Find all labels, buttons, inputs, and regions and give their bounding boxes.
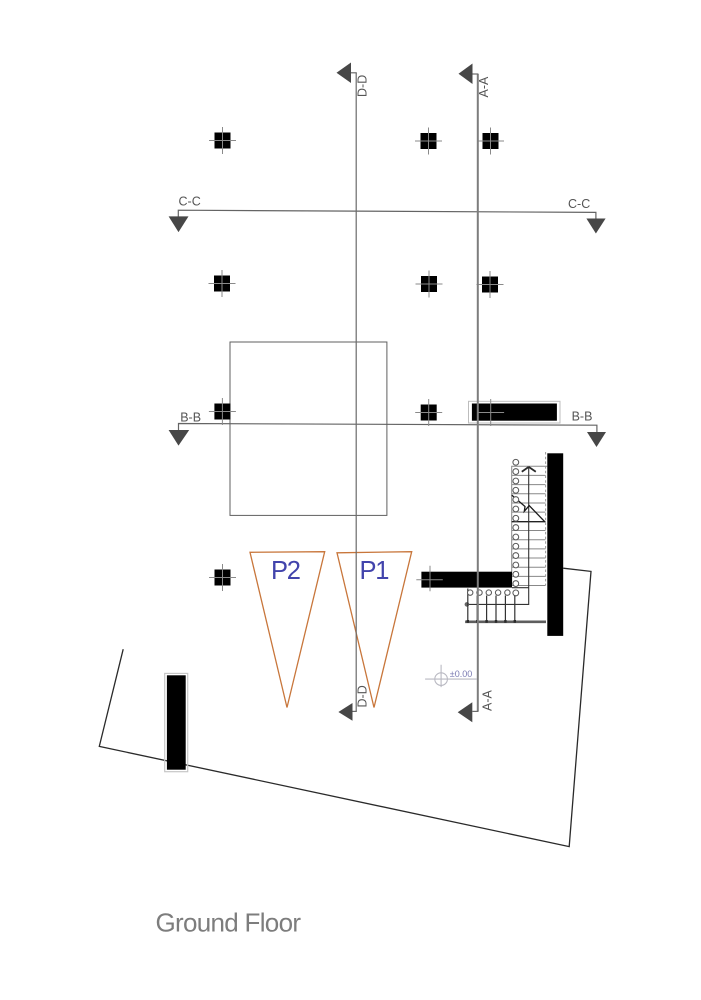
svg-text:D-D: D-D bbox=[356, 75, 370, 97]
svg-text:±0.00: ±0.00 bbox=[450, 669, 472, 679]
svg-text:B-B: B-B bbox=[180, 410, 201, 424]
svg-text:P2: P2 bbox=[271, 557, 300, 585]
svg-text:C-C: C-C bbox=[568, 197, 590, 211]
svg-text:P1: P1 bbox=[360, 557, 389, 585]
svg-text:A-A: A-A bbox=[481, 690, 495, 712]
svg-text:A-A: A-A bbox=[477, 76, 491, 98]
svg-text:B-B: B-B bbox=[572, 410, 593, 424]
svg-text:C-C: C-C bbox=[179, 195, 201, 209]
svg-text:Ground Floor: Ground Floor bbox=[156, 907, 302, 937]
svg-text:D-D: D-D bbox=[356, 685, 370, 707]
